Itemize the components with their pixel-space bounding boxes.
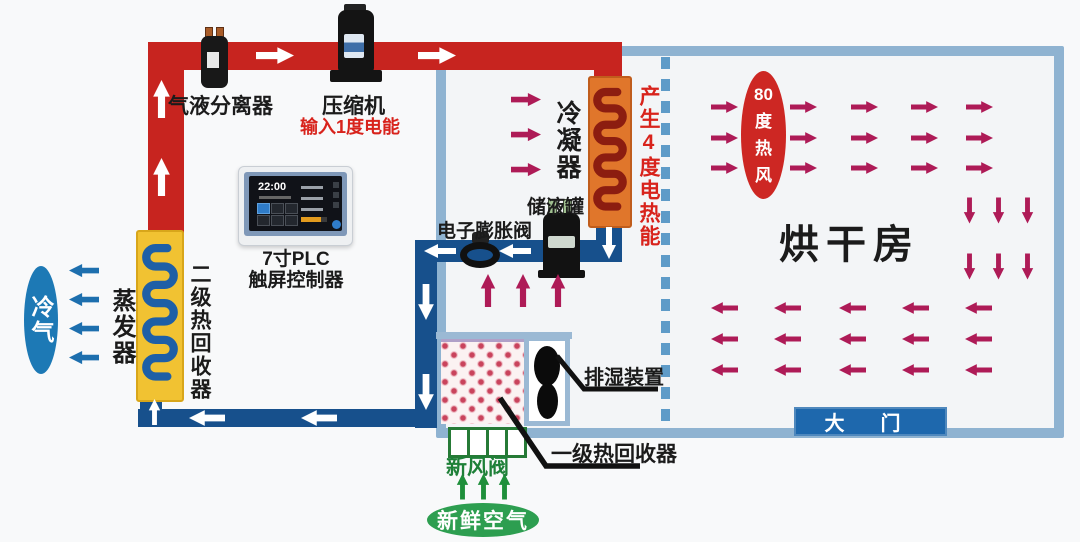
hot-air-arrow-icon: [965, 332, 992, 346]
heat-recovery-2-label: 二级热回收器: [184, 263, 214, 401]
pipe-flow-arrow-icon: [600, 227, 618, 259]
hot-air-arrow-icon: [966, 131, 993, 145]
hot-air-arrow-icon: [711, 332, 738, 346]
pipe-flow-arrow-icon: [180, 409, 234, 427]
plc-screen-button: [257, 215, 270, 226]
hot-air-arrow-icon: [965, 363, 992, 377]
hot-air-arrow-icon: [548, 274, 568, 307]
fresh-air-valve-label: 新风阀: [446, 451, 509, 481]
hot-air-arrow-icon: [966, 161, 993, 175]
hot-air-arrow-icon: [839, 332, 866, 346]
separator-label-sticker: [207, 52, 219, 68]
dehumidifier-icon: [534, 346, 560, 386]
pipe-flow-arrow-icon: [292, 409, 346, 427]
hot-air-arrow-icon: [902, 301, 929, 315]
pipe-flow-arrow-icon: [496, 243, 534, 259]
hot-air-arrow-icon: [790, 100, 817, 114]
condenser-label: 冷凝器: [549, 100, 585, 181]
plc-progress-bar: [301, 217, 327, 222]
hot-air-arrow-icon: [711, 100, 738, 114]
plc-screen-subtext: [259, 196, 291, 199]
hot-air-arrow-icon: [992, 196, 1005, 225]
compressor-base: [330, 70, 382, 82]
hot-air-arrow-icon: [790, 131, 817, 145]
plc-screen-button: [285, 215, 298, 226]
compressor-power-note: 输入1度电能: [300, 113, 400, 139]
cold-air-arrow-icon: [69, 263, 99, 278]
receiver-label: 储液罐: [527, 192, 584, 219]
receiver-tank-band: [548, 236, 575, 248]
evaporator-coil-icon: [136, 230, 184, 402]
hot-air-badge: 80 度 热 风: [741, 71, 786, 199]
heat-recovery-1-label: 一级热回收器: [551, 438, 677, 468]
pipe-flow-arrow-icon: [417, 366, 435, 418]
pipe-flow-arrow-icon: [147, 399, 162, 425]
hot-air-arrow-icon: [911, 131, 938, 145]
separator-label: 气液分离器: [168, 90, 273, 120]
cold-air-arrow-icon: [69, 350, 99, 365]
hot-air-line: 热: [755, 135, 772, 162]
plc-screen-button: [271, 203, 284, 214]
hot-air-arrow-icon: [839, 301, 866, 315]
hot-air-line: 风: [755, 162, 772, 189]
hot-air-arrow-icon: [911, 161, 938, 175]
plc-screen-button: [285, 203, 298, 214]
hot-air-arrow-icon: [963, 252, 976, 281]
hot-air-arrow-icon: [790, 161, 817, 175]
door-badge: 大门: [794, 407, 947, 436]
hot-air-arrow-icon: [513, 274, 533, 307]
plc-side-icon: [333, 192, 339, 198]
hot-air-arrow-icon: [902, 363, 929, 377]
hot-air-arrow-icon: [851, 161, 878, 175]
expansion-valve-icon: [460, 242, 500, 268]
hot-air-arrow-icon: [774, 363, 801, 377]
hot-air-arrow-icon: [774, 332, 801, 346]
hot-air-arrow-icon: [774, 301, 801, 315]
hot-air-arrow-icon: [1021, 196, 1034, 225]
hot-air-arrow-icon: [711, 363, 738, 377]
hot-pipe-left-riser: [148, 42, 184, 234]
plc-screen-readout: [301, 186, 323, 189]
hot-air-arrow-icon: [851, 131, 878, 145]
hot-air-arrow-icon: [508, 92, 544, 107]
plc-home-button: [332, 220, 341, 229]
hot-air-arrow-icon: [902, 332, 929, 346]
expansion-valve-label: 电子膨胀阀: [437, 216, 532, 243]
plc-side-icon: [333, 202, 339, 208]
fresh-air-badge: 新鲜空气: [427, 503, 539, 537]
plc-screen-button: [271, 215, 284, 226]
condenser-coil-icon: [588, 76, 632, 228]
hot-air-arrow-icon: [965, 301, 992, 315]
plc-touchscreen: 22:00: [249, 176, 342, 231]
plc-screen-readout: [301, 208, 323, 211]
plc-screen-time: 22:00: [258, 181, 286, 193]
pipe-flow-arrow-icon: [152, 150, 171, 204]
hot-air-arrow-icon: [911, 100, 938, 114]
hot-air-arrow-icon: [992, 252, 1005, 281]
plc-label-line2: 触屏控制器: [230, 270, 362, 291]
compressor-sticker: [344, 34, 364, 58]
plc-screen-readout: [301, 197, 323, 200]
pipe-flow-arrow-icon: [417, 262, 435, 342]
pipe-flow-arrow-icon: [424, 243, 456, 259]
hot-air-arrow-icon: [711, 131, 738, 145]
drying-room-label: 烘干房: [779, 212, 920, 270]
hot-air-arrow-icon: [711, 161, 738, 175]
hot-air-arrow-icon: [963, 196, 976, 225]
cold-air-badge: 冷气: [24, 266, 58, 374]
hot-air-arrow-icon: [508, 127, 544, 142]
hot-air-arrow-icon: [711, 301, 738, 315]
hot-air-arrow-icon: [1021, 252, 1034, 281]
dehumidifier-icon: [537, 383, 558, 419]
hot-air-line: 度: [755, 108, 772, 135]
hot-air-arrow-icon: [839, 363, 866, 377]
hot-air-line: 80: [754, 81, 773, 108]
cold-air-arrow-icon: [69, 321, 99, 336]
plc-label-line1: 7寸PLC: [230, 249, 362, 270]
hot-air-arrow-icon: [478, 274, 498, 307]
condenser-heat-note: 产生4度电热能: [633, 85, 663, 248]
heat-pump-drying-system-diagram: 气液分离器 压缩机 输入1度电能 22:00 7寸PLC 触屏控制器 冷凝器 产…: [0, 0, 1080, 542]
dehumidifier-label: 排湿装置: [584, 361, 664, 390]
pipe-flow-arrow-icon: [410, 46, 464, 65]
plc-side-icon: [333, 182, 339, 188]
hot-air-arrow-icon: [851, 100, 878, 114]
hot-air-arrow-icon: [966, 100, 993, 114]
evaporator-label: 蒸发器: [104, 288, 139, 366]
hot-air-arrow-icon: [508, 162, 544, 177]
pipe-flow-arrow-icon: [248, 46, 302, 65]
heat-recovery-1-panel-icon: [441, 339, 525, 424]
cold-air-arrow-icon: [69, 292, 99, 307]
plc-screen-button: [257, 203, 270, 214]
